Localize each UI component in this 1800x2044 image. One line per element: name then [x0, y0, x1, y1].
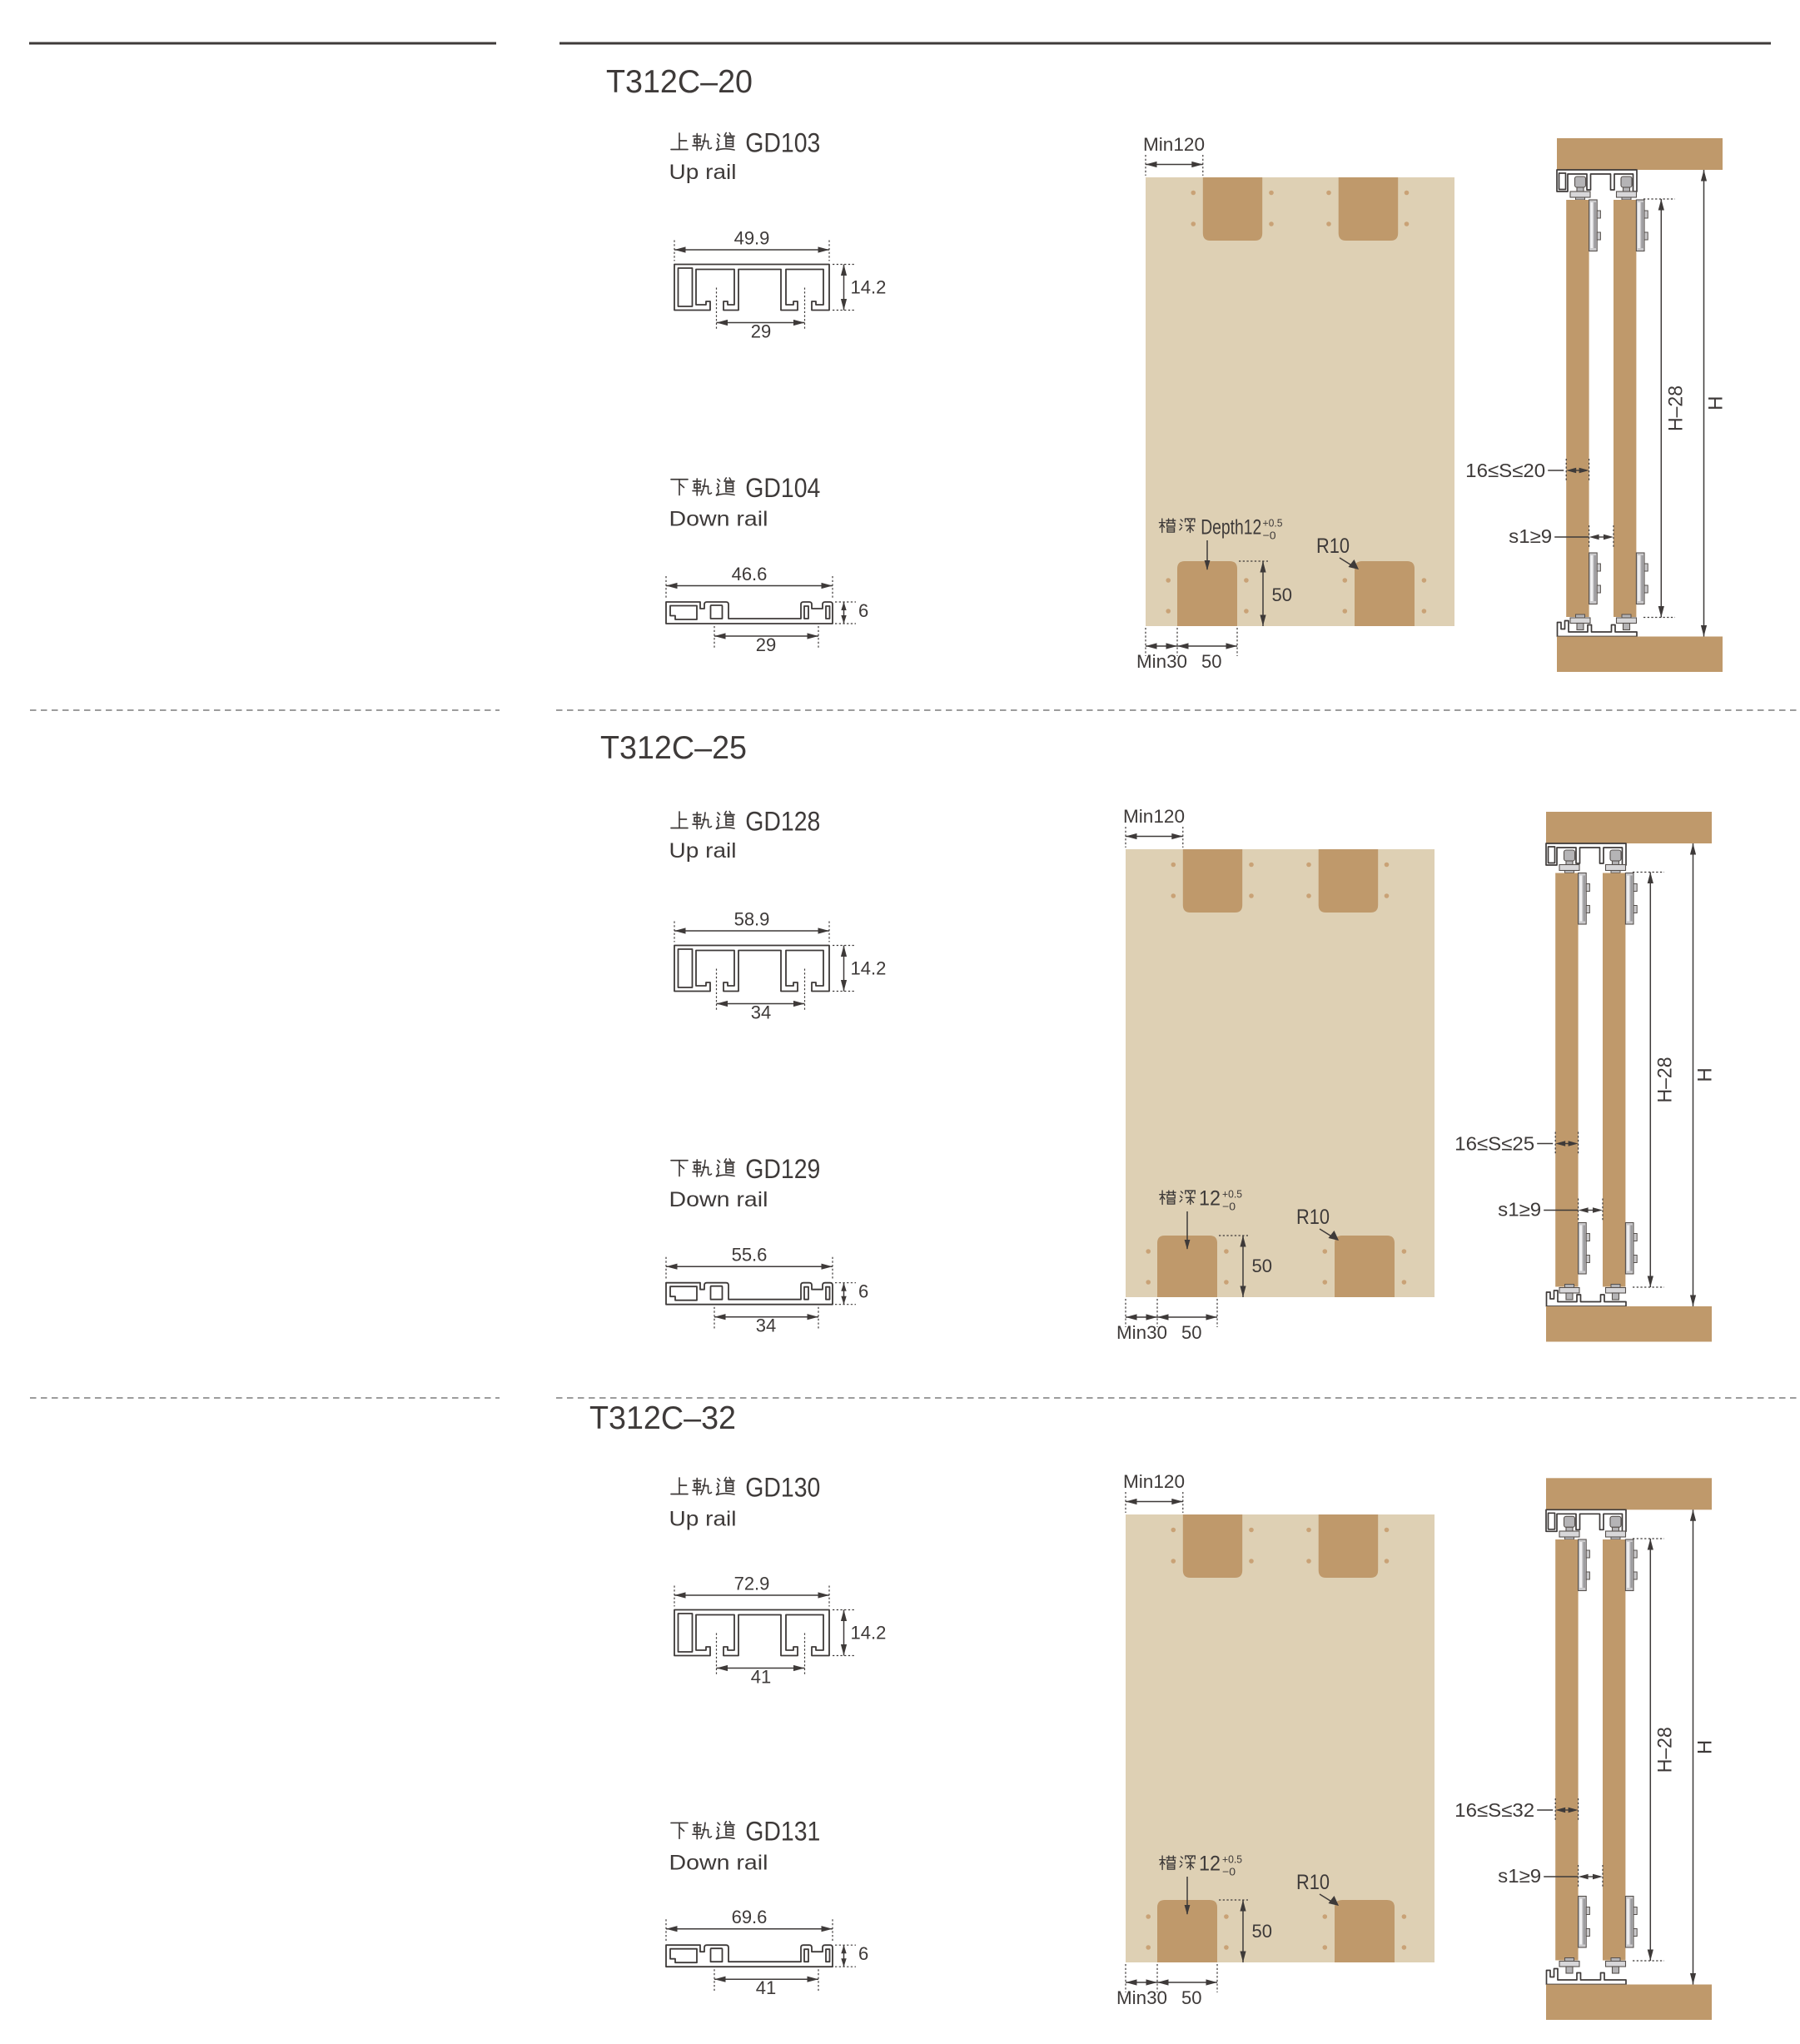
svg-text:Min120: Min120 — [1123, 806, 1185, 827]
svg-text:GD103: GD103 — [745, 128, 820, 158]
svg-text:H: H — [1694, 1067, 1717, 1082]
svg-text:−0: −0 — [1222, 1866, 1236, 1878]
svg-text:Up rail: Up rail — [669, 161, 737, 184]
svg-text:12: 12 — [1199, 1853, 1221, 1876]
svg-text:34: 34 — [751, 1002, 771, 1023]
svg-text:GD131: GD131 — [745, 1817, 820, 1847]
svg-text:55.6: 55.6 — [732, 1245, 768, 1266]
svg-text:Min120: Min120 — [1123, 1471, 1185, 1492]
svg-text:s1≥9: s1≥9 — [1498, 1865, 1541, 1887]
svg-text:6: 6 — [858, 1281, 868, 1302]
svg-text:29: 29 — [756, 634, 776, 655]
svg-text:Min120: Min120 — [1143, 134, 1205, 155]
svg-text:+0.5: +0.5 — [1263, 517, 1283, 530]
svg-text:Min30: Min30 — [1116, 1987, 1167, 2008]
svg-text:−0: −0 — [1263, 530, 1276, 542]
svg-text:49.9: 49.9 — [734, 228, 770, 249]
svg-text:72.9: 72.9 — [734, 1574, 770, 1594]
svg-text:16≤S≤25: 16≤S≤25 — [1454, 1133, 1534, 1155]
svg-text:50: 50 — [1252, 1256, 1272, 1276]
svg-text:+0.5: +0.5 — [1222, 1188, 1242, 1201]
svg-text:GD130: GD130 — [745, 1473, 820, 1503]
svg-text:−0: −0 — [1222, 1201, 1236, 1213]
svg-text:50: 50 — [1181, 1987, 1201, 2008]
svg-text:T312C–32: T312C–32 — [589, 1400, 736, 1436]
svg-text:50: 50 — [1201, 651, 1221, 672]
svg-text:Down rail: Down rail — [669, 1188, 768, 1211]
svg-text:H: H — [1694, 1740, 1717, 1754]
svg-text:H–28: H–28 — [1665, 385, 1688, 431]
svg-text:41: 41 — [756, 1977, 776, 1998]
svg-text:R10: R10 — [1316, 535, 1350, 558]
svg-text:Min30: Min30 — [1136, 651, 1187, 672]
svg-text:GD104: GD104 — [745, 473, 820, 503]
svg-text:6: 6 — [858, 1943, 868, 1964]
svg-text:T312C–20: T312C–20 — [606, 64, 753, 100]
svg-text:Up rail: Up rail — [669, 839, 737, 863]
svg-text:H: H — [1705, 396, 1728, 410]
svg-text:50: 50 — [1272, 584, 1292, 605]
svg-text:Down rail: Down rail — [669, 1851, 768, 1874]
svg-text:46.6: 46.6 — [732, 564, 768, 584]
svg-text:R10: R10 — [1296, 1206, 1330, 1229]
svg-text:s1≥9: s1≥9 — [1498, 1199, 1541, 1221]
svg-text:Down rail: Down rail — [669, 508, 768, 531]
svg-text:29: 29 — [751, 321, 771, 342]
svg-text:14.2: 14.2 — [851, 958, 887, 979]
svg-text:12: 12 — [1199, 1187, 1221, 1211]
svg-text:69.6: 69.6 — [732, 1907, 768, 1927]
svg-text:Min30: Min30 — [1116, 1322, 1167, 1343]
svg-text:GD128: GD128 — [745, 807, 820, 837]
svg-text:16≤S≤32: 16≤S≤32 — [1454, 1799, 1534, 1821]
svg-text:34: 34 — [756, 1315, 776, 1336]
svg-text:6: 6 — [858, 600, 868, 621]
svg-text:16≤S≤20: 16≤S≤20 — [1465, 460, 1545, 481]
svg-text:T312C–25: T312C–25 — [600, 730, 747, 766]
svg-text:R10: R10 — [1296, 1871, 1330, 1894]
svg-text:Depth12: Depth12 — [1201, 516, 1261, 540]
svg-text:Up rail: Up rail — [669, 1508, 737, 1531]
svg-text:GD129: GD129 — [745, 1154, 820, 1184]
svg-text:+0.5: +0.5 — [1222, 1853, 1242, 1866]
svg-text:14.2: 14.2 — [851, 1623, 887, 1644]
svg-text:41: 41 — [751, 1667, 771, 1688]
svg-text:58.9: 58.9 — [734, 909, 770, 930]
svg-text:H–28: H–28 — [1654, 1057, 1677, 1103]
svg-text:50: 50 — [1181, 1322, 1201, 1343]
svg-text:H–28: H–28 — [1654, 1727, 1677, 1773]
svg-text:50: 50 — [1252, 1921, 1272, 1942]
svg-text:s1≥9: s1≥9 — [1509, 525, 1552, 547]
svg-text:14.2: 14.2 — [851, 277, 887, 298]
